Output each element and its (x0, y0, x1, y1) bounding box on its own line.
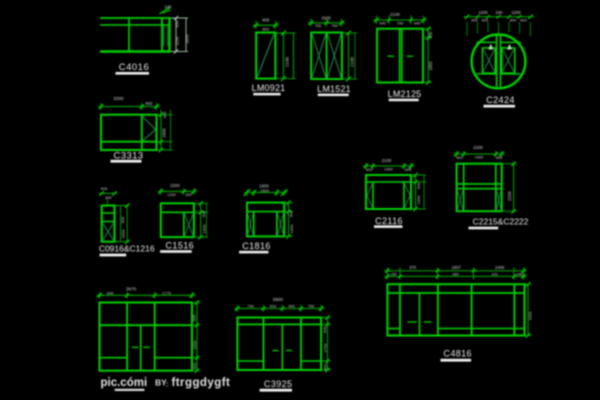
svg-text:LM0921: LM0921 (252, 83, 286, 93)
svg-text:300: 300 (366, 167, 373, 172)
svg-text:400: 400 (107, 291, 114, 296)
svg-text:600: 600 (192, 314, 197, 321)
svg-text:300: 300 (456, 155, 463, 160)
svg-text:LM2125: LM2125 (388, 89, 422, 99)
svg-text:101: 101 (491, 272, 498, 277)
svg-text:1600: 1600 (528, 311, 533, 321)
svg-text:1200: 1200 (167, 192, 176, 197)
svg-text::: : (166, 381, 168, 388)
svg-text:1200: 1200 (478, 10, 488, 15)
svg-text:1500: 1500 (162, 128, 167, 138)
svg-text:500: 500 (175, 20, 180, 28)
svg-text:900: 900 (262, 17, 270, 22)
svg-text:300: 300 (185, 192, 192, 197)
svg-text:ftrggdygft: ftrggdygft (172, 377, 231, 389)
svg-text:240: 240 (496, 10, 504, 15)
svg-text:1300: 1300 (201, 224, 206, 234)
svg-text:1500: 1500 (384, 167, 393, 172)
svg-text:C1816: C1816 (242, 241, 271, 251)
svg-text:750: 750 (331, 23, 338, 28)
svg-text:1770: 1770 (162, 291, 172, 296)
svg-text:1750: 1750 (322, 343, 327, 353)
svg-text:C2215&C2222: C2215&C2222 (473, 217, 529, 227)
svg-text:C2424: C2424 (486, 95, 515, 105)
svg-text:LM1521: LM1521 (317, 84, 351, 94)
svg-text:2200: 2200 (473, 145, 483, 150)
svg-text:600: 600 (482, 18, 489, 23)
svg-text:750: 750 (247, 304, 254, 309)
svg-text:600: 600 (510, 18, 517, 23)
svg-text:(48): (48) (516, 272, 524, 277)
svg-text:1600: 1600 (185, 34, 190, 44)
svg-text:2400: 2400 (495, 265, 505, 270)
svg-text:300: 300 (201, 210, 206, 217)
svg-text:pic.cómi: pic.cómi (101, 377, 148, 389)
svg-text:C4016: C4016 (119, 62, 150, 73)
svg-text:900: 900 (120, 216, 125, 223)
svg-text:2200: 2200 (507, 191, 512, 201)
svg-text:1300: 1300 (416, 195, 421, 205)
svg-text:1100: 1100 (175, 36, 180, 46)
svg-text:3300: 3300 (113, 96, 124, 101)
svg-text:1300: 1300 (289, 224, 294, 234)
svg-text:2100: 2100 (390, 12, 400, 17)
svg-text:600: 600 (520, 18, 527, 23)
svg-text:3970: 3970 (126, 287, 137, 292)
svg-text:800: 800 (262, 27, 269, 32)
svg-text:300: 300 (405, 167, 412, 172)
svg-text:1200: 1200 (511, 10, 521, 15)
svg-text:300: 300 (496, 155, 503, 160)
svg-text:1600: 1600 (121, 229, 126, 239)
svg-text:C4816: C4816 (443, 349, 472, 359)
svg-text:750: 750 (315, 23, 322, 28)
svg-text:2100: 2100 (382, 158, 392, 163)
svg-text:750: 750 (397, 20, 404, 25)
svg-text:300: 300 (416, 182, 421, 189)
svg-text:370: 370 (409, 265, 417, 270)
svg-text:C3925: C3925 (264, 379, 293, 389)
svg-text:1500: 1500 (321, 15, 331, 20)
svg-text:1600: 1600 (475, 155, 484, 160)
svg-text:3900: 3900 (273, 297, 284, 302)
svg-text:240: 240 (165, 5, 173, 10)
svg-text:C2116: C2116 (375, 216, 403, 226)
svg-text:800: 800 (105, 196, 111, 200)
svg-text:440: 440 (379, 20, 386, 25)
svg-text:900: 900 (145, 101, 153, 106)
svg-text:900: 900 (101, 186, 108, 191)
svg-text:300: 300 (162, 111, 167, 118)
svg-text:450: 450 (428, 31, 433, 39)
svg-text:750: 750 (308, 304, 315, 309)
svg-text:C1516: C1516 (166, 241, 195, 251)
svg-text:1500: 1500 (170, 183, 180, 188)
svg-text:2100: 2100 (350, 56, 355, 67)
svg-text:1500: 1500 (192, 340, 197, 350)
svg-text:(50: (50 (391, 272, 398, 277)
svg-text:900: 900 (270, 304, 277, 309)
svg-text:900: 900 (288, 304, 295, 309)
svg-text:900: 900 (192, 362, 197, 369)
svg-text:2100: 2100 (285, 56, 290, 67)
svg-text:C0916&C1216: C0916&C1216 (99, 244, 155, 254)
svg-text:440: 440 (414, 20, 421, 25)
svg-text:450: 450 (322, 363, 327, 370)
svg-text:1950: 1950 (428, 61, 433, 71)
svg-text:1500: 1500 (260, 188, 270, 193)
svg-text:160: 160 (452, 272, 459, 277)
svg-text:1807: 1807 (452, 265, 462, 270)
svg-text:300: 300 (322, 326, 327, 333)
svg-text:300: 300 (289, 210, 294, 217)
svg-text:600: 600 (471, 18, 478, 23)
